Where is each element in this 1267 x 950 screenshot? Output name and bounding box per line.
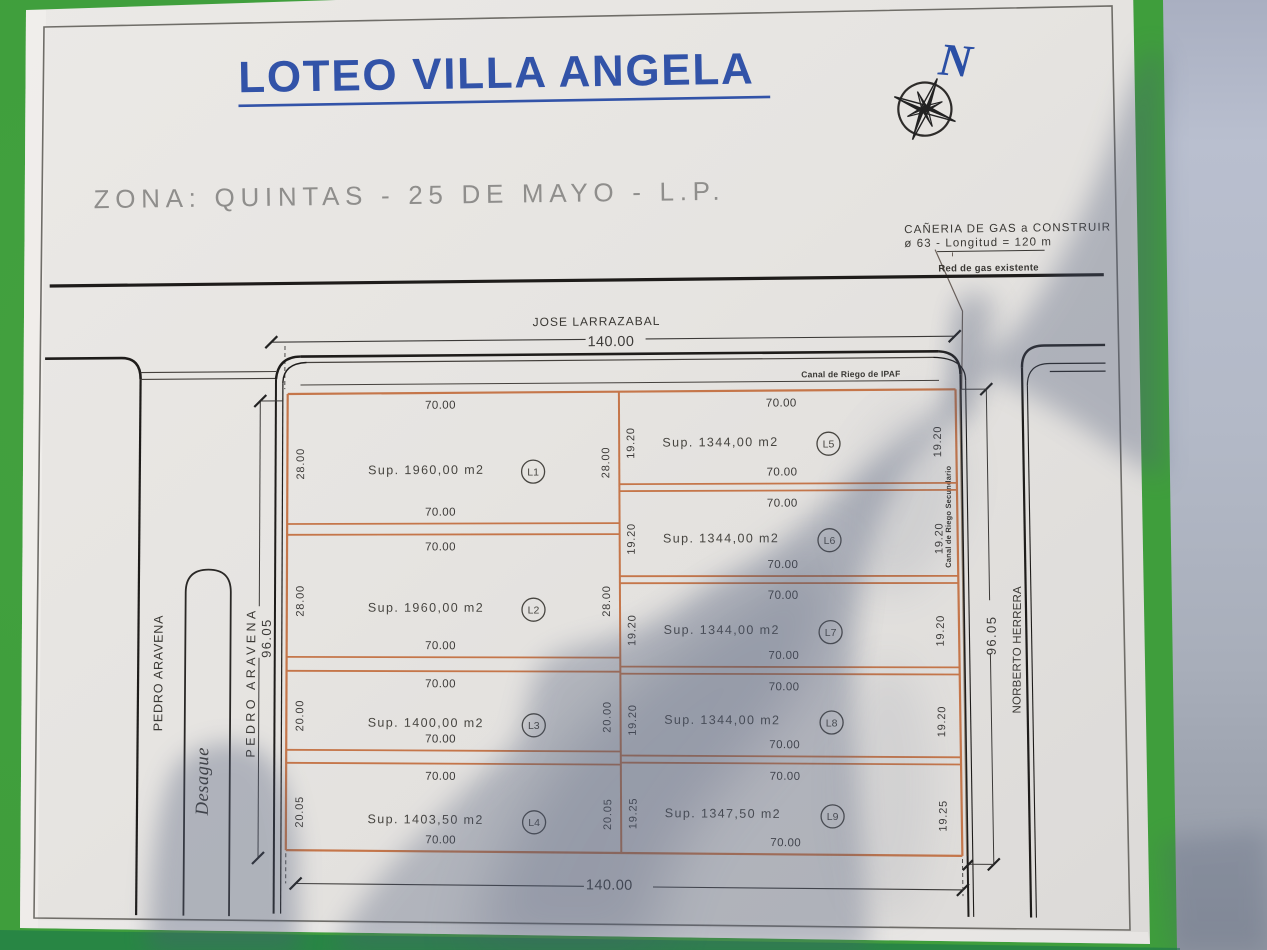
svg-text:20.00: 20.00 bbox=[294, 700, 306, 732]
svg-text:19.20: 19.20 bbox=[936, 706, 948, 738]
svg-text:70.00: 70.00 bbox=[425, 541, 456, 553]
svg-text:28.00: 28.00 bbox=[600, 447, 612, 479]
svg-text:L5: L5 bbox=[823, 439, 835, 451]
svg-text:70.00: 70.00 bbox=[425, 400, 456, 412]
svg-text:Sup. 1400,00 m2: Sup. 1400,00 m2 bbox=[368, 716, 484, 731]
svg-text:PEDRO ARAVENA: PEDRO ARAVENA bbox=[244, 607, 259, 757]
svg-text:NORBERTO HERRERA: NORBERTO HERRERA bbox=[1012, 586, 1024, 714]
svg-text:70.00: 70.00 bbox=[767, 466, 798, 478]
svg-text:PEDRO ARAVENA: PEDRO ARAVENA bbox=[151, 615, 166, 732]
svg-text:70.00: 70.00 bbox=[425, 507, 456, 519]
svg-text:19.20: 19.20 bbox=[626, 523, 638, 555]
svg-text:N: N bbox=[936, 33, 976, 87]
svg-text:70.00: 70.00 bbox=[425, 733, 456, 745]
svg-text:L1: L1 bbox=[527, 466, 539, 478]
svg-text:JOSE LARRAZABAL: JOSE LARRAZABAL bbox=[533, 314, 661, 329]
svg-text:96.05: 96.05 bbox=[259, 618, 274, 658]
svg-text:70.00: 70.00 bbox=[766, 397, 797, 409]
svg-text:140.00: 140.00 bbox=[587, 334, 634, 350]
svg-text:70.00: 70.00 bbox=[767, 498, 798, 510]
svg-text:28.00: 28.00 bbox=[295, 585, 307, 617]
svg-text:28.00: 28.00 bbox=[601, 585, 613, 617]
svg-text:ø 63 - Longitud = 120 m: ø 63 - Longitud = 120 m bbox=[904, 236, 1052, 250]
svg-text:Sup. 1960,00 m2: Sup. 1960,00 m2 bbox=[368, 463, 484, 477]
svg-text:28.00: 28.00 bbox=[295, 448, 307, 480]
svg-text:Red de gas existente: Red de gas existente bbox=[938, 262, 1039, 274]
svg-text:LOTEO VILLA ANGELA: LOTEO VILLA ANGELA bbox=[238, 44, 755, 102]
svg-text:Sup. 1344,00 m2: Sup. 1344,00 m2 bbox=[663, 531, 779, 545]
svg-text:70.00: 70.00 bbox=[425, 640, 456, 652]
svg-text:Sup. 1344,00 m2: Sup. 1344,00 m2 bbox=[662, 435, 778, 450]
svg-text:20.05: 20.05 bbox=[294, 796, 306, 828]
svg-text:Sup. 1960,00 m2: Sup. 1960,00 m2 bbox=[368, 601, 484, 615]
svg-text:70.00: 70.00 bbox=[425, 678, 456, 690]
svg-text:Canal de Riego de IPAF: Canal de Riego de IPAF bbox=[801, 369, 900, 380]
svg-text:19.20: 19.20 bbox=[625, 427, 637, 459]
svg-text:96.05: 96.05 bbox=[984, 616, 999, 656]
svg-text:19.25: 19.25 bbox=[938, 800, 950, 832]
svg-text:L2: L2 bbox=[528, 605, 540, 617]
svg-text:70.00: 70.00 bbox=[425, 771, 456, 783]
svg-text:19.20: 19.20 bbox=[935, 615, 947, 647]
